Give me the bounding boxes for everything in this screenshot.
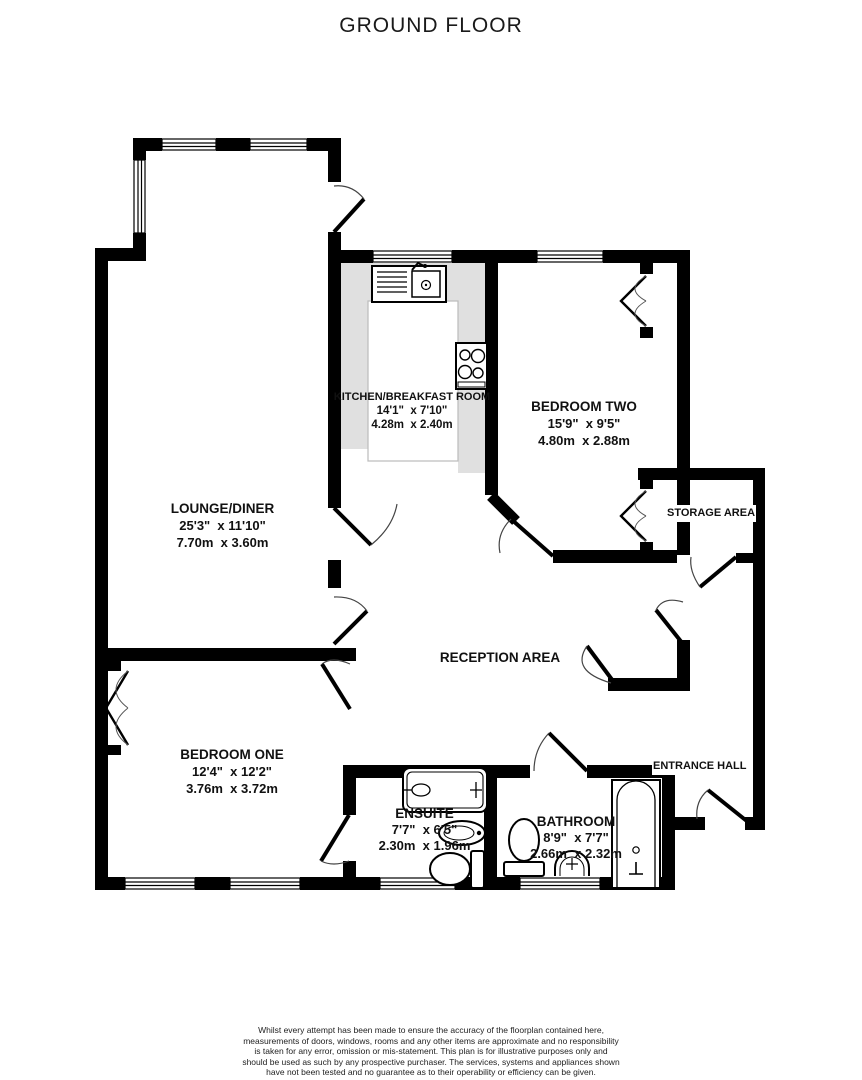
room-dims-imperial: 12'4" x 12'2" bbox=[132, 763, 332, 780]
room-dims-imperial: 7'7" x 6'5" bbox=[352, 822, 497, 838]
room-dims-metric: 2.66m x 2.32m bbox=[500, 846, 652, 862]
disclaimer: Whilst every attempt has been made to en… bbox=[241, 1025, 621, 1080]
door-kitchen bbox=[334, 504, 397, 545]
door-reception-hall bbox=[656, 600, 683, 644]
room-name: BEDROOM ONE bbox=[132, 746, 332, 763]
room-label-kitchen: KITCHEN/BREAKFAST ROOM 14'1" x 7'10" 4.2… bbox=[333, 390, 491, 432]
room-dims-imperial: 15'9" x 9'5" bbox=[504, 415, 664, 432]
room-dims-imperial: 8'9" x 7'7" bbox=[500, 830, 652, 846]
room-dims-metric: 7.70m x 3.60m bbox=[120, 534, 325, 551]
room-dims-metric: 2.30m x 1.96m bbox=[352, 838, 497, 854]
kitchen-sink bbox=[372, 263, 446, 302]
window-bathroom-bottom bbox=[520, 878, 600, 889]
floorplan-page: GROUND FLOOR bbox=[0, 0, 862, 1080]
window-bedroom-one-bottom-1 bbox=[125, 878, 195, 889]
room-label-reception: RECEPTION AREA bbox=[400, 649, 600, 666]
wardrobe-bedroom-two-top bbox=[621, 276, 646, 326]
room-name: RECEPTION AREA bbox=[400, 649, 600, 666]
door-lounge-kitchen bbox=[334, 186, 364, 232]
window-bedroom-one-bottom-2 bbox=[230, 878, 300, 889]
window-lounge-top-2 bbox=[250, 139, 307, 150]
room-label-lounge: LOUNGE/DINER 25'3" x 11'10" 7.70m x 3.60… bbox=[120, 500, 325, 551]
room-dims-imperial: 14'1" x 7'10" bbox=[333, 404, 491, 418]
room-name: BEDROOM TWO bbox=[504, 398, 664, 415]
door-ensuite bbox=[321, 815, 349, 864]
room-label-bedroom-two: BEDROOM TWO 15'9" x 9'5" 4.80m x 2.88m bbox=[504, 398, 664, 449]
door-lounge-reception bbox=[334, 597, 367, 644]
room-dims-metric: 4.80m x 2.88m bbox=[504, 432, 664, 449]
room-dims-metric: 3.76m x 3.72m bbox=[132, 780, 332, 797]
wardrobe-bedroom-two-bottom bbox=[621, 491, 646, 541]
room-dims-imperial: 25'3" x 11'10" bbox=[120, 517, 325, 534]
ensuite-toilet bbox=[430, 851, 484, 888]
room-dims-metric: 4.28m x 2.40m bbox=[333, 418, 491, 432]
room-label-bathroom: BATHROOM 8'9" x 7'7" 2.66m x 2.32m bbox=[500, 814, 652, 862]
kitchen-hob bbox=[456, 343, 487, 389]
room-name: ENSUITE bbox=[352, 806, 497, 822]
window-kitchen-top bbox=[373, 251, 452, 262]
door-bedroom-one bbox=[322, 660, 350, 709]
disclaimer-text: Whilst every attempt has been made to en… bbox=[242, 1025, 619, 1077]
window-lounge-top-1 bbox=[162, 139, 216, 150]
room-name: KITCHEN/BREAKFAST ROOM bbox=[333, 390, 491, 404]
door-storage bbox=[691, 557, 736, 587]
room-name: LOUNGE/DINER bbox=[120, 500, 325, 517]
room-label-bedroom-one: BEDROOM ONE 12'4" x 12'2" 3.76m x 3.72m bbox=[132, 746, 332, 797]
door-bathroom bbox=[534, 733, 587, 771]
door-bedroom-two bbox=[499, 519, 553, 556]
chamfer-wall bbox=[491, 496, 516, 521]
room-label-storage: STORAGE AREA bbox=[666, 505, 756, 522]
window-lounge-left bbox=[134, 160, 145, 233]
room-name: BATHROOM bbox=[500, 814, 652, 830]
wardrobe-bedroom-one bbox=[106, 671, 128, 745]
room-label-entrance-hall: ENTRANCE HALL bbox=[652, 758, 748, 775]
room-name: STORAGE AREA bbox=[667, 507, 755, 519]
room-label-ensuite: ENSUITE 7'7" x 6'5" 2.30m x 1.96m bbox=[352, 806, 497, 854]
window-bedroom-two-top bbox=[537, 251, 603, 262]
room-name: ENTRANCE HALL bbox=[653, 760, 747, 772]
